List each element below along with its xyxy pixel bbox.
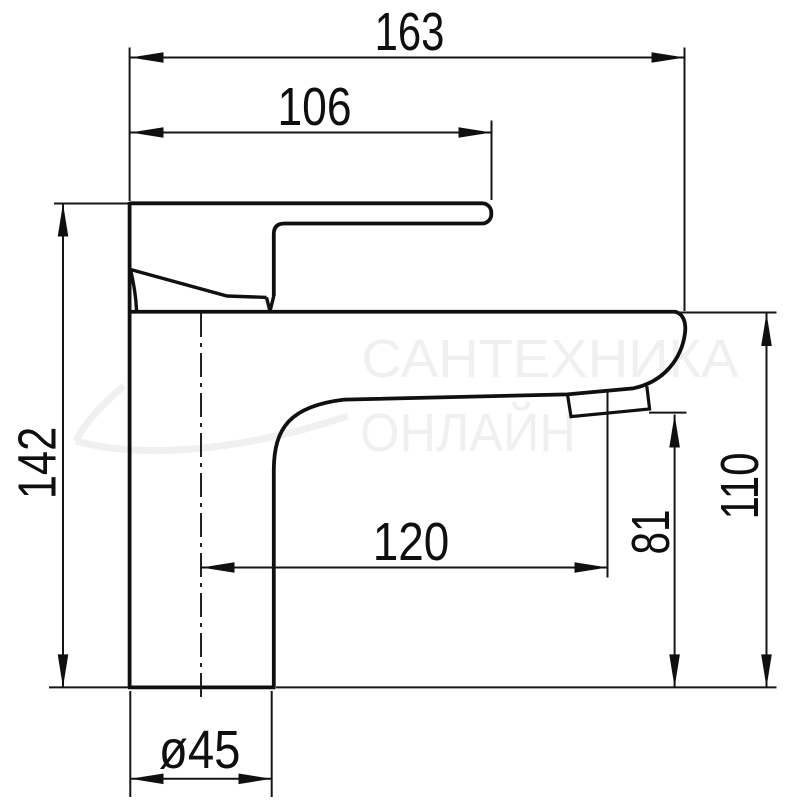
- svg-text:ОНЛАЙН: ОНЛАЙН: [360, 402, 576, 463]
- svg-text:81: 81: [621, 509, 681, 554]
- svg-text:120: 120: [373, 512, 450, 572]
- svg-text:ø45: ø45: [159, 719, 241, 780]
- svg-text:САНТЕХНИКА: САНТЕХНИКА: [361, 328, 738, 389]
- svg-text:110: 110: [710, 452, 770, 519]
- svg-text:142: 142: [8, 427, 67, 500]
- svg-text:106: 106: [277, 77, 351, 137]
- svg-text:163: 163: [375, 2, 445, 62]
